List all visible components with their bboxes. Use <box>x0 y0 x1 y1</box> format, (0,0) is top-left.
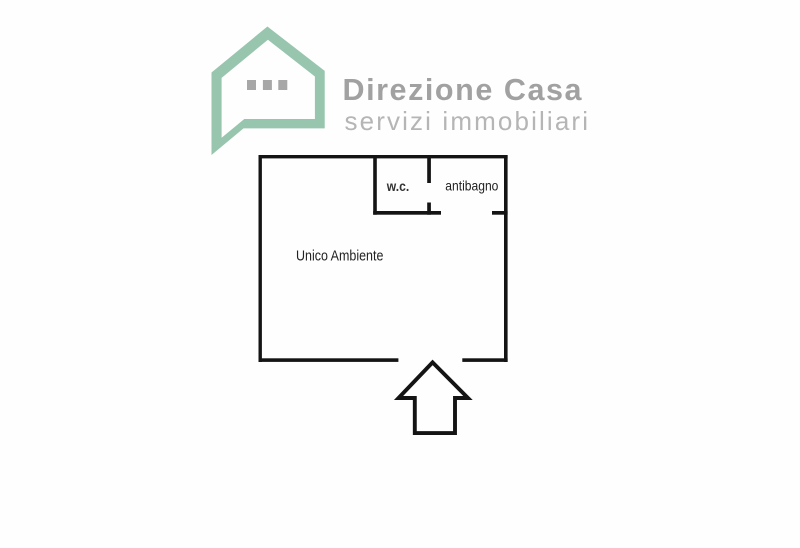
svg-text:servizi immobiliari: servizi immobiliari <box>345 106 589 136</box>
svg-text:antibagno: antibagno <box>445 179 498 194</box>
svg-text:Direzione Casa: Direzione Casa <box>343 73 583 107</box>
svg-text:Unico Ambiente: Unico Ambiente <box>296 248 383 264</box>
svg-text:w.c.: w.c. <box>386 179 409 194</box>
